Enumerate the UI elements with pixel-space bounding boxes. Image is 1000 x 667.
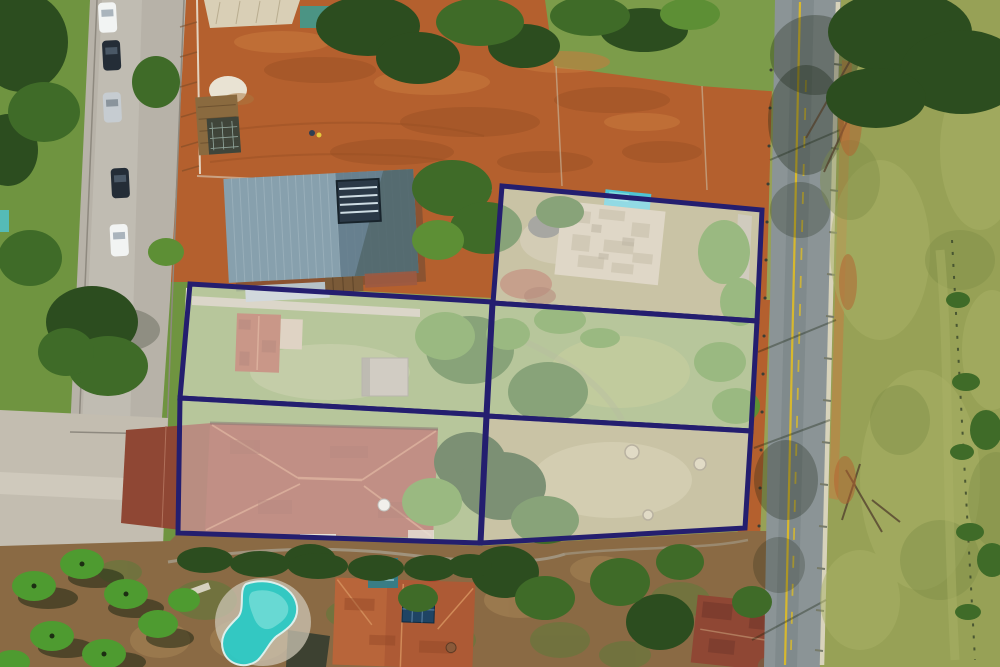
lot-boundary-bottom-right xyxy=(481,416,751,543)
car-silver xyxy=(103,92,123,123)
metal-roof-house xyxy=(223,169,426,303)
car-dark xyxy=(111,168,131,199)
car-dark xyxy=(102,40,122,71)
lot-boundary-middle-left xyxy=(180,284,492,415)
person xyxy=(309,130,315,136)
lot-boundary-bottom-left xyxy=(178,398,486,543)
car-white xyxy=(109,224,129,257)
wood-deck xyxy=(195,95,241,156)
aerial-scene xyxy=(0,0,1000,667)
skylight xyxy=(337,179,381,223)
aerial-photo xyxy=(0,0,1000,667)
lot-boundary-top-right xyxy=(493,186,762,321)
lot-boundary-middle-right xyxy=(487,303,757,431)
awning xyxy=(204,0,300,28)
car-white xyxy=(98,2,118,33)
